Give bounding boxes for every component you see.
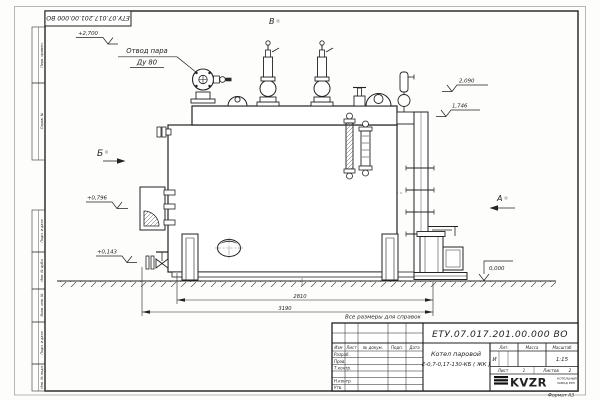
svg-text:+2,700: +2,700 <box>78 31 99 37</box>
corner-stamp: ЕТУ.07.017.201.00.000 ВО <box>45 11 131 26</box>
svg-text:2,090: 2,090 <box>459 79 475 85</box>
format-label: Формат А3 <box>548 393 574 399</box>
company-line2: ЗАВОД РЭП <box>557 381 575 385</box>
steam-label-line2: Ду 80 <box>136 59 157 67</box>
row-nkontr: Н.контр. <box>334 379 352 384</box>
view-label-v: В <box>269 17 280 26</box>
margin-label: Справ. № <box>40 112 44 129</box>
safety-valve-2 <box>311 41 333 106</box>
scale-value: 1:15 <box>556 357 569 363</box>
elevation-gauge: 1,746 <box>436 104 480 117</box>
elevation-low: +0,143 <box>96 250 137 263</box>
row-razrab: Разраб. <box>334 352 350 357</box>
support-leg-rear <box>382 234 398 280</box>
lit-value: И <box>492 357 496 363</box>
mass-label: Масса <box>526 345 539 350</box>
col-doc: № докум. <box>362 345 383 350</box>
steam-label-line1: Отвод пара <box>126 47 167 55</box>
feed-valve <box>353 88 391 107</box>
svg-text:В: В <box>269 17 275 26</box>
scale-label: Масштаб <box>552 345 572 350</box>
svg-text:1,746: 1,746 <box>452 104 468 110</box>
title-block: ЕТУ.07.017.201.00.000 ВО Изм Лист № доку… <box>332 323 578 399</box>
view-label-a: А <box>490 194 516 211</box>
sheets-total: 2 <box>569 368 572 373</box>
steam-outlet-valve <box>191 69 232 103</box>
reference-note: Все размеры для справок <box>345 315 422 321</box>
dim-overall: 3190 <box>278 306 292 312</box>
margin-label: Подп. и дата <box>40 219 44 242</box>
pressure-gauge-siphon <box>398 72 414 112</box>
margin-label: Инв. № подл. <box>40 365 44 388</box>
company-logo-text: KVZR <box>510 376 547 390</box>
corner-stamp-text: ЕТУ.07.017.201.00.000 ВО <box>46 14 130 21</box>
margin-label: Подп. и дата <box>40 331 44 354</box>
col-date: Дата <box>408 345 420 350</box>
margin-label: Инв. № дубл. <box>40 258 44 281</box>
dim-inner: 2810 <box>293 294 307 300</box>
row-utv: Утв. <box>334 385 342 390</box>
drawing-sheet: Перв. примен. Справ. № Подп. и дата Инв.… <box>0 0 600 400</box>
sheets-label: Листов <box>542 368 559 373</box>
front-gauge-box <box>140 187 175 230</box>
company-line1: КОТЕЛЬНЫЙ <box>557 376 577 381</box>
lifting-lug <box>228 97 247 107</box>
col-sign: Подп. <box>391 345 403 350</box>
margin-label: Перв. примен. <box>40 42 44 67</box>
boiler-view <box>140 41 467 286</box>
col-izm: Изм <box>334 345 342 350</box>
safety-valve-1 <box>257 41 279 106</box>
row-tkontr: Т.контр. <box>334 365 351 370</box>
row-prov: Пров. <box>334 359 346 364</box>
product-type: Е-0,7-0,17-130-КБ ( ЖК ) <box>422 362 491 368</box>
sheet-label: Лист <box>497 368 509 373</box>
col-list: Лист <box>345 345 357 350</box>
elevation-mid: +0,796 <box>86 196 128 209</box>
svg-text:Б: Б <box>97 149 103 159</box>
support-leg-front <box>182 234 198 280</box>
margin-stamps: Перв. примен. Справ. № Подп. и дата Инв.… <box>32 27 45 391</box>
drain-valve <box>146 252 168 269</box>
svg-text:+0,796: +0,796 <box>87 196 108 202</box>
margin-label: Взам. инв. № <box>40 293 44 316</box>
designation: ЕТУ.07.017.201.00.000 ВО <box>432 329 568 340</box>
elevation-top: +2,700 <box>76 31 118 44</box>
view-label-b: Б <box>97 149 126 164</box>
svg-text:А: А <box>496 194 502 203</box>
elevation-zero: 0,000 <box>479 261 513 281</box>
ground-line <box>57 281 556 287</box>
svg-text:0,000: 0,000 <box>489 266 505 272</box>
product-name: Котел паровой <box>431 350 481 358</box>
elevation-drum: 2,090 <box>442 79 488 92</box>
burner-unit <box>414 227 467 280</box>
svg-text:+0,143: +0,143 <box>97 250 118 256</box>
sheet-number: 1 <box>523 368 526 373</box>
lit-label: Лит. <box>498 345 508 350</box>
